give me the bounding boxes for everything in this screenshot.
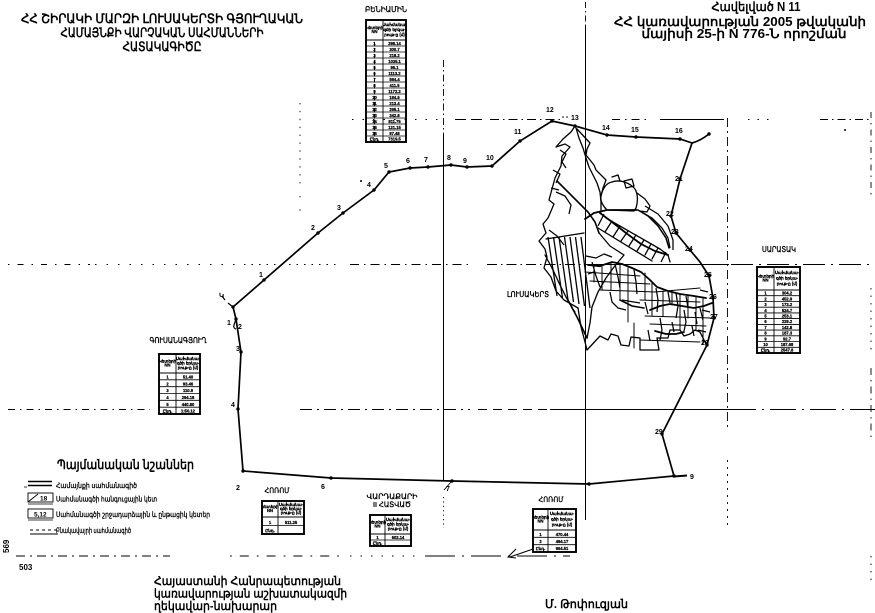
svg-text:12: 12 bbox=[546, 107, 554, 114]
svg-text:173.2: 173.2 bbox=[782, 302, 793, 307]
svg-text:Սահմանա-: Սահմանա- bbox=[775, 270, 800, 275]
svg-text:րութ-ը (մ): րութ-ը (մ) bbox=[552, 522, 573, 527]
svg-text:NN: NN bbox=[372, 29, 378, 34]
svg-text:6: 6 bbox=[321, 484, 325, 491]
svg-text:470.44: 470.44 bbox=[556, 532, 569, 537]
svg-text:295.1: 295.1 bbox=[389, 107, 400, 112]
svg-text:27: 27 bbox=[710, 314, 718, 321]
svg-text:3: 3 bbox=[764, 302, 767, 307]
svg-text:7319.5: 7319.5 bbox=[388, 137, 401, 142]
svg-text:6: 6 bbox=[373, 71, 376, 76]
svg-text:29: 29 bbox=[655, 429, 663, 436]
svg-text:97.48: 97.48 bbox=[389, 131, 400, 136]
svg-text:ՀԱՄԱՅՆՔԻ ՎԱՐՉԱԿԱՆ ՍԱՀՄԱՆՆԵՐԻ: ՀԱՄԱՅՆՔԻ ՎԱՐՉԱԿԱՆ ՍԱՀՄԱՆՆԵՐԻ bbox=[61, 25, 264, 40]
svg-text:գծի երկա-: գծի երկա- bbox=[776, 276, 799, 281]
svg-text:4: 4 bbox=[373, 59, 376, 64]
svg-text:1:50.12: 1:50.12 bbox=[181, 408, 196, 413]
svg-text:8: 8 bbox=[764, 331, 767, 336]
svg-text:2: 2 bbox=[764, 296, 767, 301]
svg-text:NN: NN bbox=[375, 524, 381, 529]
svg-text:NN: NN bbox=[165, 363, 171, 368]
svg-text:9: 9 bbox=[764, 336, 767, 341]
svg-text:րութ-ը (մ): րութ-ը (մ) bbox=[281, 510, 302, 515]
svg-text:16: 16 bbox=[372, 131, 377, 136]
svg-text:9: 9 bbox=[373, 89, 376, 94]
svg-text:5: 5 bbox=[384, 163, 388, 170]
svg-text:298.14: 298.14 bbox=[388, 41, 401, 46]
svg-text:2: 2 bbox=[238, 324, 242, 331]
svg-text:16: 16 bbox=[675, 128, 683, 135]
svg-text:14: 14 bbox=[372, 119, 377, 124]
svg-text:964.51: 964.51 bbox=[556, 546, 569, 551]
svg-text:ԳՈՒՍԱՆԱԳՅՈՒՂ: ԳՈՒՍԱՆԱԳՅՈՒՂ bbox=[150, 336, 207, 345]
svg-text:5: 5 bbox=[764, 314, 767, 319]
svg-text:11: 11 bbox=[372, 101, 377, 106]
svg-text:51.40: 51.40 bbox=[183, 375, 194, 380]
svg-text:րութ-ը (մ): րութ-ը (մ) bbox=[388, 526, 409, 531]
svg-text:213.4: 213.4 bbox=[389, 101, 400, 106]
svg-text:Սահմանագծի հանգուցային կետ: Սահմանագծի հանգուցային կետ bbox=[56, 494, 158, 505]
svg-text:ՀՈՌՈՄ: ՀՈՌՈՄ bbox=[265, 486, 291, 495]
svg-text:18: 18 bbox=[40, 496, 48, 503]
svg-text:2: 2 bbox=[373, 47, 376, 52]
svg-text:26: 26 bbox=[709, 294, 717, 301]
svg-text:300.7: 300.7 bbox=[389, 47, 400, 52]
svg-text:93.46: 93.46 bbox=[183, 381, 194, 386]
svg-text:3: 3 bbox=[337, 205, 341, 212]
svg-text:Մ. Թոփուզյան: Մ. Թոփուզյան bbox=[545, 597, 628, 611]
svg-text:23: 23 bbox=[671, 229, 679, 236]
svg-text:452.9: 452.9 bbox=[782, 296, 793, 301]
svg-text:184.5: 184.5 bbox=[389, 95, 400, 100]
svg-text:1172.3: 1172.3 bbox=[388, 89, 401, 94]
svg-text:Կ: Կ bbox=[219, 292, 224, 300]
svg-text:Սահմանագծի շրջադարձային և ընթա: Սահմանագծի շրջադարձային և ընթացիկ կետեր bbox=[56, 509, 210, 520]
svg-text:II ՀԱՏՎԱԾ: II ՀԱՏՎԱԾ bbox=[373, 500, 411, 509]
svg-text:րութ-ը (մ): րութ-ը (մ) bbox=[384, 32, 405, 37]
svg-text:9: 9 bbox=[690, 474, 694, 481]
svg-text:Ընդ.: Ընդ. bbox=[761, 348, 770, 353]
svg-text:ԲԵՆԻԱՄԻՆ: ԲԵՆԻԱՄԻՆ bbox=[365, 5, 407, 14]
svg-text:110.9: 110.9 bbox=[183, 388, 194, 393]
svg-text:411.5: 411.5 bbox=[389, 83, 400, 88]
svg-text:5,12: 5,12 bbox=[34, 512, 47, 519]
svg-text:142.8: 142.8 bbox=[782, 325, 793, 330]
svg-text:Ընդ.: Ընդ. bbox=[536, 546, 545, 551]
svg-text:1: 1 bbox=[539, 532, 542, 537]
svg-text:494.17: 494.17 bbox=[556, 539, 569, 544]
svg-text:229.2: 229.2 bbox=[782, 319, 793, 324]
svg-text:1: 1 bbox=[259, 272, 263, 279]
svg-text:524.7: 524.7 bbox=[782, 308, 793, 313]
svg-text:96.1: 96.1 bbox=[391, 65, 400, 70]
svg-text:ղեկավար-նախարար: ղեկավար-նախարար bbox=[154, 599, 277, 613]
svg-text:4: 4 bbox=[764, 308, 767, 313]
svg-text:10: 10 bbox=[486, 155, 494, 162]
svg-text:440.80: 440.80 bbox=[182, 402, 195, 407]
svg-text:7: 7 bbox=[764, 325, 767, 330]
svg-text:218.2: 218.2 bbox=[389, 53, 400, 58]
svg-text:511.25: 511.25 bbox=[285, 520, 298, 525]
svg-text:4: 4 bbox=[367, 182, 371, 189]
svg-text:10: 10 bbox=[763, 342, 768, 347]
svg-text:121.15: 121.15 bbox=[388, 125, 401, 130]
svg-text:13: 13 bbox=[372, 113, 377, 118]
svg-text:3: 3 bbox=[166, 388, 169, 393]
svg-text:7: 7 bbox=[373, 77, 376, 82]
svg-text:5: 5 bbox=[166, 402, 169, 407]
svg-text:րութ-ը (մ): րութ-ը (մ) bbox=[777, 281, 798, 286]
svg-text:503: 503 bbox=[19, 563, 33, 572]
svg-text:5: 5 bbox=[373, 65, 376, 70]
svg-text:ՀՀ ՇԻՐԱԿԻ ՄԱՐԶԻ ԼՈՒՍԱԿԵՐՏԻ ԳՅՈ: ՀՀ ՇԻՐԱԿԻ ՄԱՐԶԻ ԼՈՒՍԱԿԵՐՏԻ ԳՅՈՒՂԱԿԱՆ bbox=[21, 11, 303, 26]
svg-text:ՀՈՌՈՄ: ՀՈՌՈՄ bbox=[539, 495, 565, 504]
svg-text:294.18: 294.18 bbox=[182, 395, 195, 400]
svg-text:2547.8: 2547.8 bbox=[781, 348, 794, 353]
svg-text:22: 22 bbox=[666, 211, 674, 218]
svg-text:2: 2 bbox=[311, 225, 315, 232]
svg-text:Հավելված N 11: Հավելված N 11 bbox=[712, 0, 801, 14]
svg-text:մայիսի 25-ի N 776-Ն որոշման: մայիսի 25-ի N 776-Ն որոշման bbox=[642, 26, 847, 41]
svg-text:3: 3 bbox=[236, 346, 240, 353]
svg-text:602.14: 602.14 bbox=[392, 535, 405, 540]
svg-text:ՍԱՐԱՏԱԿ: ՍԱՐԱՏԱԿ bbox=[762, 245, 796, 254]
svg-text:NN: NN bbox=[538, 519, 544, 524]
svg-text:1: 1 bbox=[227, 320, 231, 327]
svg-text:15: 15 bbox=[372, 125, 377, 130]
svg-text:569: 569 bbox=[2, 539, 11, 553]
svg-text:187.3: 187.3 bbox=[782, 331, 793, 336]
svg-text:ԼՈՒՍԱԿԵՐՏ: ԼՈՒՍԱԿԵՐՏ bbox=[507, 290, 549, 299]
svg-text:4: 4 bbox=[231, 402, 235, 409]
svg-text:6: 6 bbox=[406, 158, 410, 165]
svg-text:1: 1 bbox=[269, 520, 272, 525]
svg-text:Ընդ.: Ընդ. bbox=[373, 541, 382, 546]
svg-text:2: 2 bbox=[236, 485, 240, 492]
svg-text:Պայմանական նշաններ: Պայմանական նշաններ bbox=[57, 457, 194, 472]
svg-text:21: 21 bbox=[675, 176, 683, 183]
svg-text:14: 14 bbox=[602, 125, 610, 132]
svg-text:304.2: 304.2 bbox=[782, 291, 793, 296]
svg-text:9: 9 bbox=[463, 158, 467, 165]
svg-text:24: 24 bbox=[685, 246, 693, 253]
svg-text:Ընդ.: Ընդ. bbox=[163, 408, 172, 413]
svg-text:ՀԱՏԱԿԱԳԻԾԸ: ՀԱՏԱԿԱԳԻԾԸ bbox=[123, 39, 202, 54]
svg-text:3: 3 bbox=[373, 53, 376, 58]
svg-text:92.7: 92.7 bbox=[783, 336, 792, 341]
svg-text:811.75: 811.75 bbox=[388, 119, 401, 124]
svg-text:րութ-ը (մ): րութ-ը (մ) bbox=[178, 365, 199, 370]
svg-text:2: 2 bbox=[539, 539, 542, 544]
svg-text:6: 6 bbox=[764, 319, 767, 324]
svg-text:8: 8 bbox=[447, 155, 451, 162]
svg-text:Համայնքի սահմանագիծ: Համայնքի սահմանագիծ bbox=[56, 480, 137, 490]
svg-text:187.68: 187.68 bbox=[781, 342, 794, 347]
svg-text:Ընդ.: Ընդ. bbox=[370, 137, 379, 142]
svg-text:8: 8 bbox=[373, 83, 376, 88]
svg-text:10: 10 bbox=[372, 95, 377, 100]
svg-text:1035.1: 1035.1 bbox=[388, 59, 401, 64]
svg-text:1: 1 bbox=[376, 535, 379, 540]
svg-text:1: 1 bbox=[373, 41, 376, 46]
svg-text:253.1: 253.1 bbox=[782, 314, 793, 319]
svg-text:1: 1 bbox=[764, 291, 767, 296]
svg-text:13: 13 bbox=[571, 115, 579, 122]
svg-text:1113.2: 1113.2 bbox=[388, 71, 401, 76]
svg-text:11: 11 bbox=[514, 129, 522, 136]
svg-text:Բնակավայրի սահմանագիծ: Բնակավայրի սահմանագիծ bbox=[56, 525, 131, 535]
svg-text:Սահմանա-: Սահմանա- bbox=[550, 511, 575, 516]
svg-text:25: 25 bbox=[704, 272, 712, 279]
svg-text:NN: NN bbox=[763, 278, 769, 283]
svg-text:15: 15 bbox=[631, 127, 639, 134]
svg-text:Ընդ.: Ընդ. bbox=[265, 528, 274, 533]
svg-text:12: 12 bbox=[372, 107, 377, 112]
svg-text:594.4: 594.4 bbox=[389, 77, 400, 82]
svg-text:342.8: 342.8 bbox=[389, 113, 400, 118]
svg-text:2: 2 bbox=[166, 381, 169, 386]
svg-text:7: 7 bbox=[424, 157, 428, 164]
svg-text:գծի երկա-: գծի երկա- bbox=[551, 517, 574, 522]
svg-text:4: 4 bbox=[166, 395, 169, 400]
svg-text:1: 1 bbox=[166, 375, 169, 380]
svg-text:NN: NN bbox=[267, 508, 273, 513]
